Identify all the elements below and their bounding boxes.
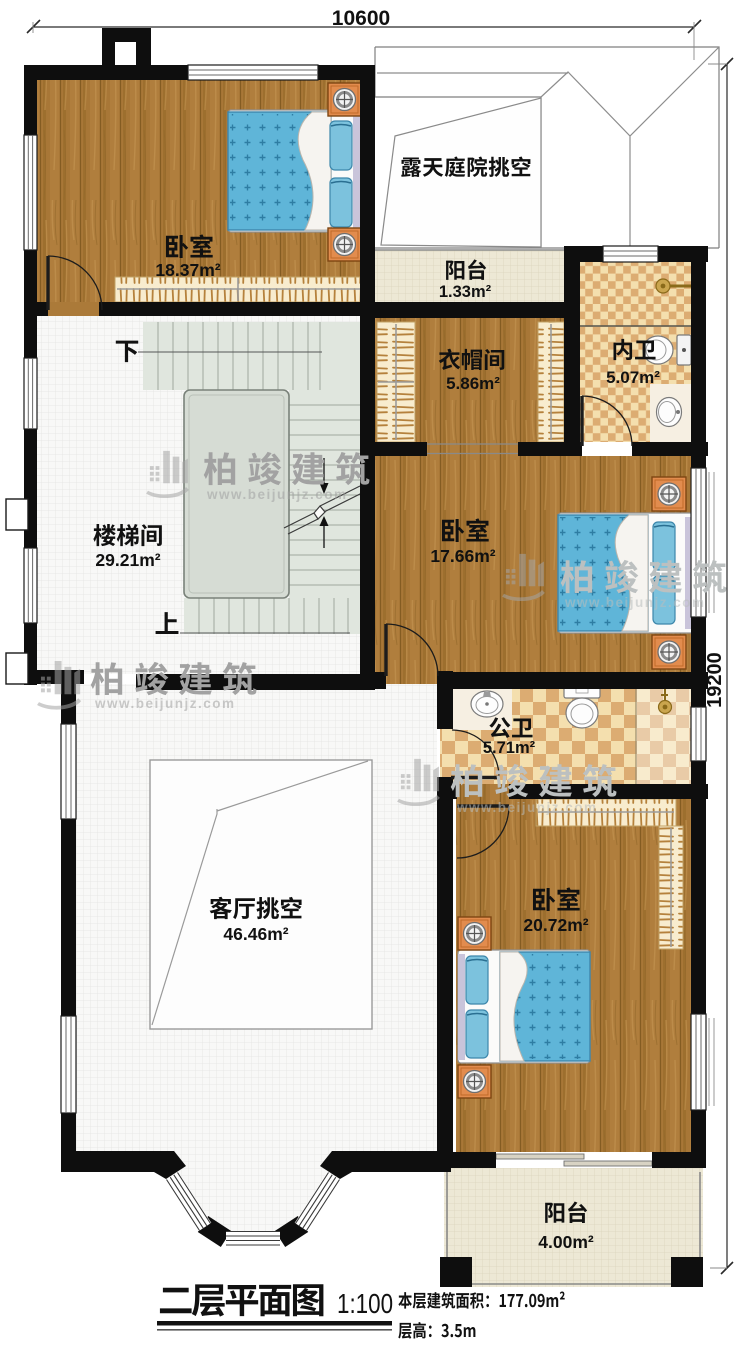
svg-text:17.66m²: 17.66m² [430,546,495,566]
svg-text:5.86m²: 5.86m² [446,374,500,393]
svg-text:5.07m²: 5.07m² [606,368,660,387]
svg-text:10600: 10600 [332,7,390,30]
svg-text:www.beijunjz.com: www.beijunjz.com [94,696,236,711]
svg-text:1:100: 1:100 [337,1289,393,1320]
svg-text:www.beijunjz.com: www.beijunjz.com [456,800,598,815]
svg-text:19200: 19200 [704,652,726,708]
svg-text:5.71m²: 5.71m² [483,739,536,757]
svg-text:1.33m²: 1.33m² [439,283,492,301]
svg-text:18.37m²: 18.37m² [155,260,220,280]
svg-text:46.46m²: 46.46m² [223,924,288,944]
svg-text:29.21m²: 29.21m² [95,550,160,570]
svg-text:4.00m²: 4.00m² [538,1232,594,1252]
svg-text:www.beijunjz.com: www.beijunjz.com [564,595,706,610]
svg-text:20.72m²: 20.72m² [523,915,588,935]
svg-text:www.beijunjz.com: www.beijunjz.com [206,487,348,502]
